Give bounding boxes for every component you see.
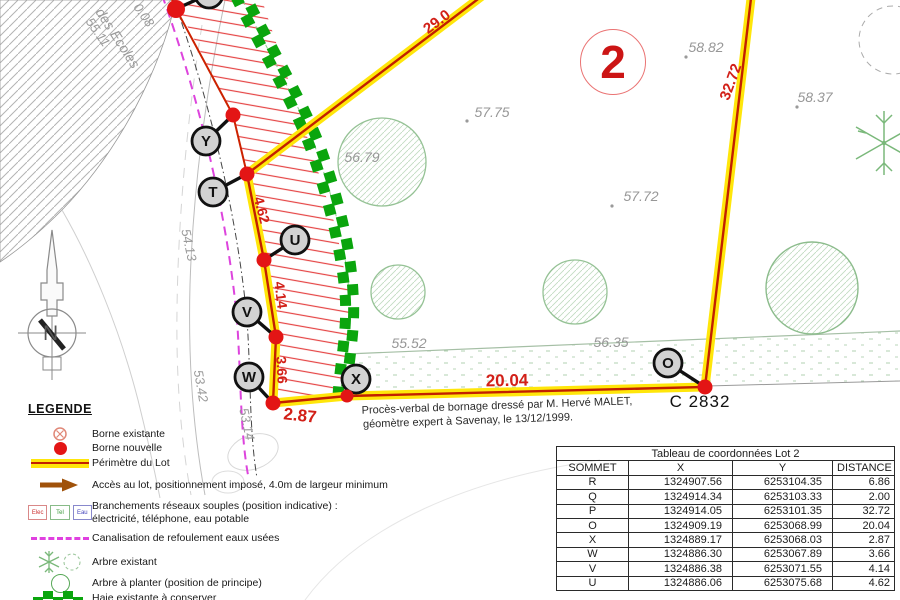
legend-label-line1: Branchements réseaux souples (position i… <box>92 500 338 512</box>
table-row: U1324886.066253075.684.62 <box>557 576 895 590</box>
coordinates-table: Tableau de coordonnées Lot 2 SOMMET X Y … <box>556 446 895 591</box>
legend: LEGENDE Borne existante Borne nouvelle P… <box>28 402 498 600</box>
table-cell: 4.62 <box>833 576 895 590</box>
table-cell: 6253067.89 <box>733 547 833 561</box>
elevation-label: 58.82 <box>688 39 723 55</box>
table-cell: 6253075.68 <box>733 576 833 590</box>
column-header-distance: DISTANCE <box>833 461 895 475</box>
legend-item-perimetre: Périmètre du Lot <box>28 457 170 470</box>
distance-label: 20.04 <box>486 371 529 392</box>
marker-letter-U: U <box>290 232 301 249</box>
legend-label: Arbre à planter (position de principe) <box>92 577 262 590</box>
elevation-label: 57.72 <box>623 188 658 204</box>
legend-label: Accès au lot, positionnement imposé, 4.0… <box>92 479 388 492</box>
marker-letter-X: X <box>351 371 361 388</box>
table-cell: 1324886.30 <box>629 547 733 561</box>
sewer-pipe-icon <box>28 537 92 540</box>
table-cell: 1324907.56 <box>629 475 733 489</box>
legend-item-haie: Haie existante à conserver <box>28 591 216 600</box>
marker-letter-T: T <box>208 184 217 201</box>
table-cell: X <box>557 533 629 547</box>
legend-label: Borne existante <box>92 428 165 441</box>
table-cell: 1324886.06 <box>629 576 733 590</box>
table-row: X1324889.176253068.032.87 <box>557 533 895 547</box>
elevation-label: 57.75 <box>474 104 509 120</box>
marker-letter-O: O <box>662 355 674 372</box>
table-row: O1324909.196253068.9920.04 <box>557 518 895 532</box>
legend-item-canalisation: Canalisation de refoulement eaux usées <box>28 532 279 545</box>
existing-stone-icon <box>28 426 92 442</box>
table-row: V1324886.386253071.554.14 <box>557 562 895 576</box>
elevation-label: 58.37 <box>797 89 832 105</box>
legend-label: Branchements réseaux souples (position i… <box>92 500 338 525</box>
table-cell: V <box>557 562 629 576</box>
table-cell: 32.72 <box>833 504 895 518</box>
survey-plan: Y T U V W X O <box>0 0 900 600</box>
legend-item-acces: Accès au lot, positionnement imposé, 4.0… <box>28 478 388 492</box>
table-cell: 6.86 <box>833 475 895 489</box>
legend-item-branchements: Elec Tel Eau Branchements réseaux souple… <box>28 500 338 525</box>
legend-label: Canalisation de refoulement eaux usées <box>92 532 279 545</box>
column-header-y: Y <box>733 461 833 475</box>
table-cell: 6253068.03 <box>733 533 833 547</box>
hedge-icon <box>28 591 92 600</box>
access-arrow-icon <box>28 478 92 492</box>
legend-label: Borne nouvelle <box>92 442 162 455</box>
lot-number: 2 <box>600 39 626 85</box>
elevation-label: 55.52 <box>391 335 426 351</box>
tree-existing <box>543 260 607 324</box>
perimeter-icon <box>28 459 92 468</box>
table-row: P1324914.056253101.3532.72 <box>557 504 895 518</box>
tree-existing <box>371 265 425 319</box>
column-header-x: X <box>629 461 733 475</box>
water-box: Eau <box>73 505 92 520</box>
table-cell: W <box>557 547 629 561</box>
lot-number-badge: 2 <box>580 29 646 95</box>
tree-sketch-circle <box>859 6 900 74</box>
electricity-box: Elec <box>28 505 47 520</box>
table-title: Tableau de coordonnées Lot 2 <box>557 447 895 461</box>
table-cell: 2.00 <box>833 490 895 504</box>
table-body: R1324907.566253104.356.86Q1324914.346253… <box>557 475 895 590</box>
legend-label: Haie existante à conserver <box>92 592 216 600</box>
table-cell: O <box>557 518 629 532</box>
telephone-box: Tel <box>50 505 69 520</box>
table-cell: 3.66 <box>833 547 895 561</box>
table-row: R1324907.566253104.356.86 <box>557 475 895 489</box>
legend-label-line2: électricité, téléphone, eau potable <box>92 513 249 525</box>
table-cell: 6253101.35 <box>733 504 833 518</box>
elevation-label: 56.79 <box>344 149 379 165</box>
table-cell: 6253068.99 <box>733 518 833 532</box>
table-cell: 1324889.17 <box>629 533 733 547</box>
distance-label: 3.66 <box>273 356 290 384</box>
table-row: W1324886.306253067.893.66 <box>557 547 895 561</box>
marker-letter-V: V <box>242 304 252 321</box>
table-cell: 6253071.55 <box>733 562 833 576</box>
column-header-sommet: SOMMET <box>557 461 629 475</box>
table-cell: 1324914.34 <box>629 490 733 504</box>
table-row: Q1324914.346253103.332.00 <box>557 490 895 504</box>
new-stone-icon <box>28 442 92 455</box>
table-cell: 2.87 <box>833 533 895 547</box>
existing-tree-icon <box>28 550 92 574</box>
marker-letter-Y: Y <box>201 133 211 150</box>
conifer-icon <box>856 111 900 175</box>
table-cell: 1324914.05 <box>629 504 733 518</box>
table-cell: U <box>557 576 629 590</box>
north-letter: N <box>43 322 58 345</box>
table-cell: 20.04 <box>833 518 895 532</box>
table-header-row: SOMMET X Y DISTANCE <box>557 461 895 475</box>
table-cell: Q <box>557 490 629 504</box>
table-cell: 6253103.33 <box>733 490 833 504</box>
table-cell: R <box>557 475 629 489</box>
table-cell: 1324909.19 <box>629 518 733 532</box>
marker-letter-W: W <box>242 369 257 386</box>
table-cell: 4.14 <box>833 562 895 576</box>
legend-label: Périmètre du Lot <box>92 457 170 470</box>
legend-label: Arbre existant <box>92 556 157 569</box>
legend-item-borne-nouvelle: Borne nouvelle <box>28 442 162 455</box>
table-cell: 1324886.38 <box>629 562 733 576</box>
distance-label: 4.14 <box>271 281 290 310</box>
north-arrow: N <box>18 230 86 380</box>
legend-item-borne-existante: Borne existante <box>28 426 165 442</box>
table-title-row: Tableau de coordonnées Lot 2 <box>557 447 895 461</box>
table-cell: 6253104.35 <box>733 475 833 489</box>
legend-item-arbre-existant: Arbre existant <box>28 550 157 574</box>
utility-boxes-icon: Elec Tel Eau <box>28 505 92 520</box>
table-cell: P <box>557 504 629 518</box>
street-hatch-area <box>0 0 176 262</box>
legend-title: LEGENDE <box>28 402 498 416</box>
tree-existing <box>766 242 858 334</box>
elevation-label: 56.35 <box>593 334 628 350</box>
parcel-reference: C 2832 <box>670 392 731 412</box>
